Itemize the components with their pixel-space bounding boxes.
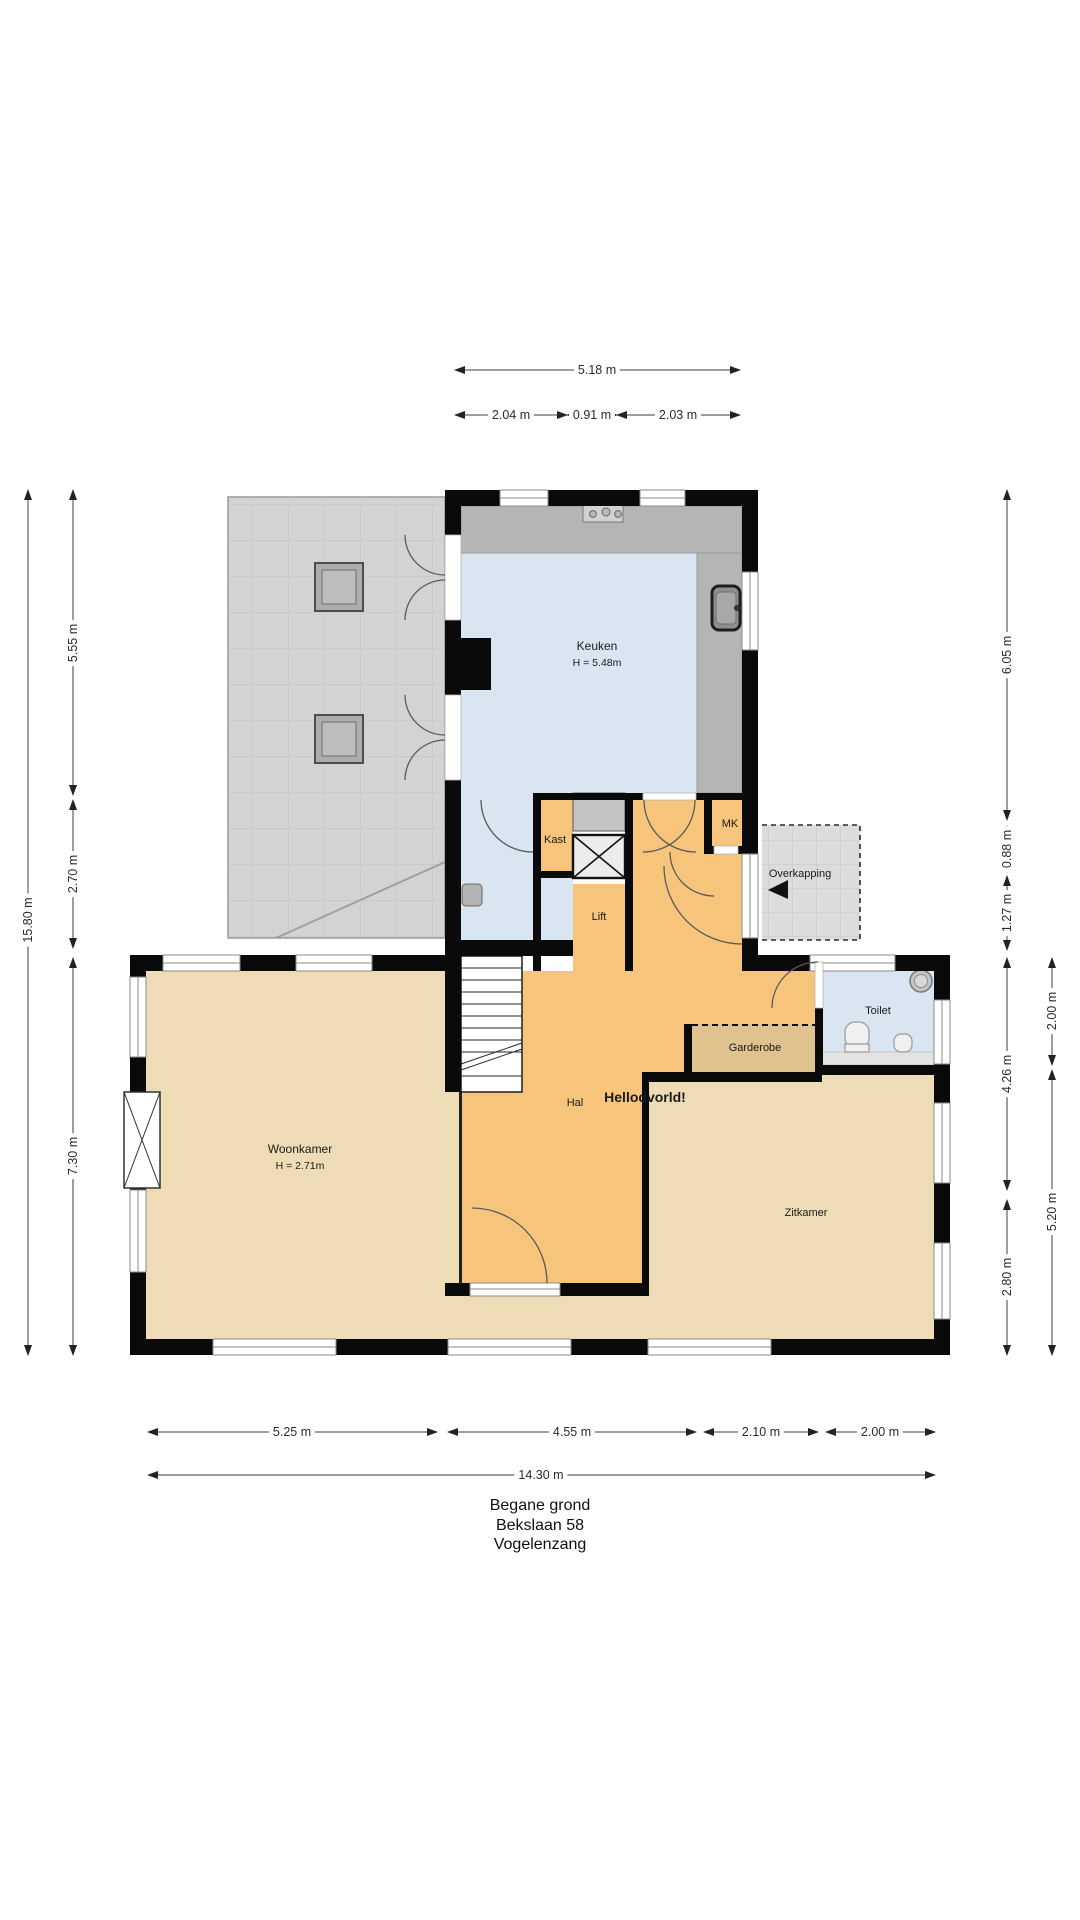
room-label-kast: Kast: [544, 834, 566, 846]
dim-left-c: 7.30 m: [66, 1133, 80, 1179]
floorplan-drawing: [0, 0, 1080, 1920]
room-label-mk: MK: [722, 818, 739, 830]
dim-right-c: 1.27 m: [1000, 890, 1014, 936]
watermark-label: Hellodvorld!: [604, 1089, 686, 1105]
overkapping-area: [762, 825, 860, 940]
dim-top-c: 2.03 m: [655, 408, 701, 422]
room-label-zitkamer: Zitkamer: [785, 1207, 828, 1219]
floorplan-page: 5.18 m 2.04 m 0.91 m 2.03 m 15.80 m 5.55…: [0, 0, 1080, 1920]
dim-top-total: 5.18 m: [574, 363, 620, 377]
dim-right-outer-a: 2.00 m: [1045, 988, 1059, 1034]
small-sink-icon: [462, 884, 482, 906]
room-label-overkapping: Overkapping: [769, 868, 831, 880]
dim-bottom-total: 14.30 m: [514, 1468, 567, 1482]
washbasin-icon: [910, 970, 932, 992]
room-label-keuken: Keuken: [577, 639, 618, 653]
room-label-woonkamer: Woonkamer: [268, 1142, 332, 1156]
dim-right-e: 2.80 m: [1000, 1254, 1014, 1300]
dim-left-a: 5.55 m: [66, 620, 80, 666]
room-label-lift: Lift: [592, 911, 607, 923]
dim-left-b: 2.70 m: [66, 851, 80, 897]
dim-bottom-a: 5.25 m: [269, 1425, 315, 1439]
lift-shaft: [573, 793, 625, 878]
title-floor: Begane grond: [490, 1496, 591, 1516]
dim-left-total: 15.80 m: [21, 893, 35, 946]
kitchen-sink-icon: [712, 586, 740, 630]
dim-top-a: 2.04 m: [488, 408, 534, 422]
room-label-toilet: Toilet: [865, 1005, 891, 1017]
room-lift-floor: [573, 884, 625, 971]
room-toilet: [822, 970, 934, 1065]
dim-right-a: 6.05 m: [1000, 632, 1014, 678]
urinal-icon: [894, 1034, 912, 1052]
room-height-woonkamer: H = 2.71m: [276, 1160, 325, 1172]
dim-bottom-b: 4.55 m: [549, 1425, 595, 1439]
dim-top-b: 0.91 m: [569, 408, 615, 422]
dim-right-b: 0.88 m: [1000, 826, 1014, 872]
dim-bottom-c: 2.10 m: [738, 1425, 784, 1439]
dim-right-d: 4.26 m: [1000, 1051, 1014, 1097]
room-label-hal: Hal: [567, 1097, 584, 1109]
title-street: Bekslaan 58: [490, 1516, 591, 1536]
dim-bottom-d: 2.00 m: [857, 1425, 903, 1439]
toilet-icon: [845, 1022, 869, 1052]
dim-right-outer-b: 5.20 m: [1045, 1189, 1059, 1235]
title-block: Begane grond Bekslaan 58 Vogelenzang: [490, 1496, 591, 1555]
room-height-keuken: H = 5.48m: [573, 657, 622, 669]
room-label-garderobe: Garderobe: [729, 1042, 782, 1054]
fireplace-icon: [124, 1092, 160, 1188]
stairs: [461, 956, 522, 1092]
title-city: Vogelenzang: [490, 1535, 591, 1555]
